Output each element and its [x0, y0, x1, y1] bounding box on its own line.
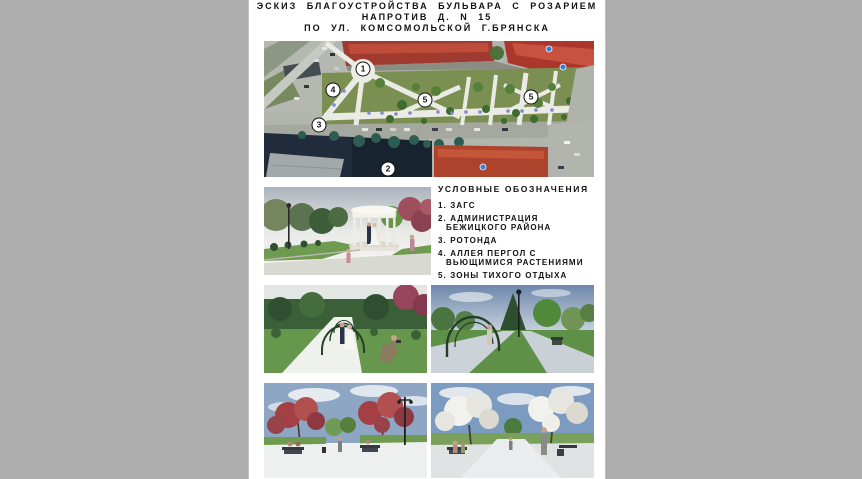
legend-item-number: 3. — [438, 236, 447, 245]
map-marker: 4 — [326, 83, 341, 98]
legend-item: 5. ЗОНЫ ТИХОГО ОТДЫХА — [438, 271, 600, 280]
map-marker: 5 — [524, 90, 539, 105]
poster-page: { "colors": { "page_background": "#adada… — [0, 0, 862, 479]
poster-panel: ЭСКИЗ БЛАГОУСТРОЙСТВА БУЛЬВАРА С РОЗАРИЕ… — [248, 0, 606, 479]
legend-item-label: РОТОНДА — [450, 236, 497, 245]
legend-title: УСЛОВНЫЕ ОБОЗНАЧЕНИЯ — [438, 184, 600, 194]
legend-item: 1. ЗАГС — [438, 201, 600, 210]
site-plan-figure: 1 2 3 4 5 5 — [264, 41, 594, 177]
red-trees-boulevard-illustration — [264, 383, 427, 478]
legend-item-label: ЗАГС — [450, 201, 475, 210]
render-red-trees-boulevard-figure — [264, 383, 427, 478]
rotunda-illustration — [264, 187, 431, 275]
legend-item: 4. АЛЛЕЯ ПЕРГОЛ С ВЬЮЩИМИСЯ РАСТЕНИЯМИ — [438, 249, 600, 267]
legend-item-number: 1. — [438, 201, 447, 210]
render-blossom-path-figure — [431, 383, 594, 478]
rotunda-render-figure — [264, 187, 431, 275]
pergola-person — [487, 324, 492, 345]
title-line-2: НАПРОТИВ Д. N 15 — [249, 12, 605, 23]
pergola-alley-illustration — [431, 285, 594, 373]
legend-item-label: ЗОНЫ ТИХОГО ОТДЫХА — [450, 271, 567, 280]
legend-item: 2. АДМИНИСТРАЦИЯ БЕЖИЦКОГО РАЙОНА — [438, 214, 600, 232]
map-marker: 5 — [418, 93, 433, 108]
blossom-path-illustration — [431, 383, 594, 478]
render-wedding-arches-figure — [264, 285, 427, 373]
legend: УСЛОВНЫЕ ОБОЗНАЧЕНИЯ 1. ЗАГС 2. АДМИНИСТ… — [438, 184, 600, 284]
title-line-1: ЭСКИЗ БЛАГОУСТРОЙСТВА БУЛЬВАРА С РОЗАРИЕ… — [249, 1, 605, 12]
map-marker: 2 — [381, 162, 396, 177]
legend-item-number: 4. — [438, 249, 447, 258]
legend-item-number: 2. — [438, 214, 447, 223]
legend-item-label: АДМИНИСТРАЦИЯ БЕЖИЦКОГО РАЙОНА — [446, 214, 551, 232]
render-pergola-alley-figure — [431, 285, 594, 373]
site-plan-illustration — [264, 41, 594, 177]
title-line-3: ПО УЛ. КОМСОМОЛЬСКОЙ Г.БРЯНСКА — [249, 23, 605, 34]
legend-item: 3. РОТОНДА — [438, 236, 600, 245]
poster-title: ЭСКИЗ БЛАГОУСТРОЙСТВА БУЛЬВАРА С РОЗАРИЕ… — [249, 1, 605, 34]
legend-item-label: АЛЛЕЯ ПЕРГОЛ С ВЬЮЩИМИСЯ РАСТЕНИЯМИ — [446, 249, 584, 267]
map-marker: 1 — [356, 62, 371, 77]
legend-item-number: 5. — [438, 271, 447, 280]
wedding-arches-illustration — [264, 285, 427, 373]
map-marker: 3 — [312, 118, 327, 133]
pergola-bench — [551, 337, 563, 345]
